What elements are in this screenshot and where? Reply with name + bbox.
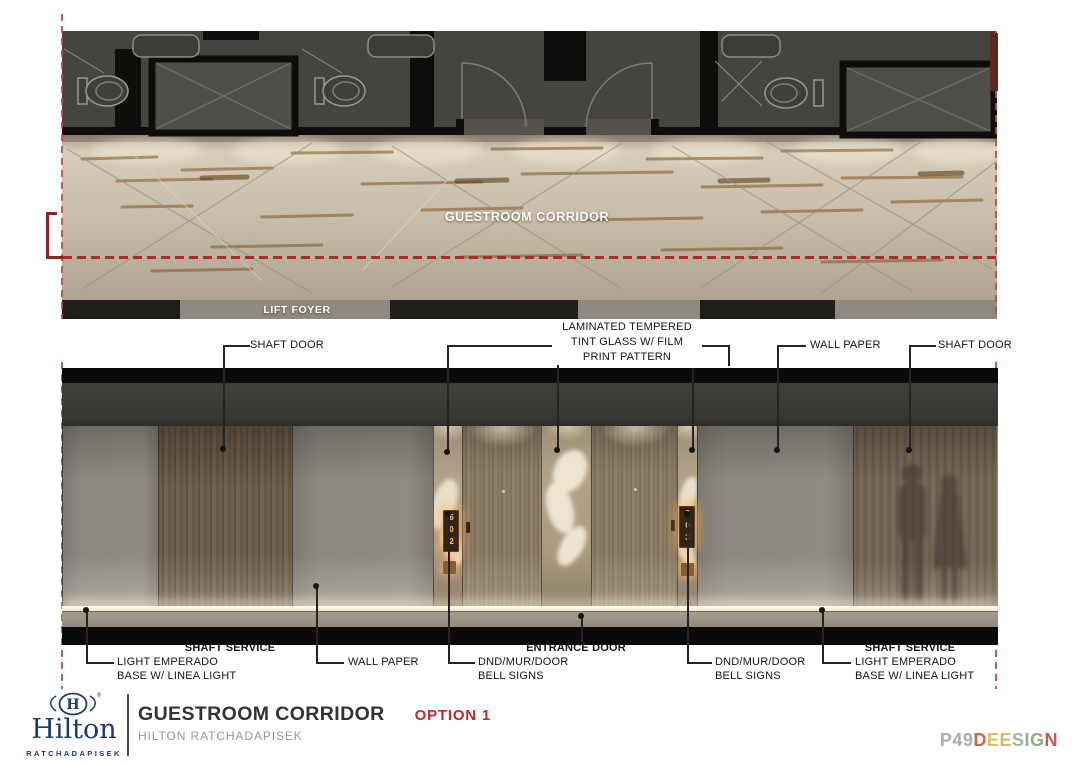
callout-shaft-service-right-title: SHAFT SERVICE — [835, 642, 985, 654]
leader-line — [448, 514, 450, 663]
entrance-door-603 — [591, 426, 678, 606]
shaft-service-door-left — [158, 426, 293, 606]
leader-line — [581, 616, 583, 642]
callout-shaft-service-right-line1: LIGHT EMPERADO — [855, 656, 956, 668]
callout-shaft-door-left: SHAFT DOOR — [250, 339, 324, 351]
callout-laminated-glass-line3: PRINT PATTERN — [552, 350, 702, 365]
studio-logo-letter: 4 — [952, 730, 963, 750]
leader-line — [822, 610, 824, 663]
page-subtitle: HILTON RATCHADAPISEK — [138, 729, 303, 743]
leader-line — [687, 514, 689, 663]
leader-line — [447, 345, 562, 347]
emperado-base — [62, 611, 998, 628]
footer: H ® Hilton RATCHADAPISEK GUESTROOM CORRI… — [0, 688, 1080, 763]
plan-drawing — [62, 31, 997, 319]
studio-logo-letter: D — [973, 730, 987, 750]
callout-dnd-left-line2: BELL SIGNS — [478, 670, 544, 682]
plan-corridor-label: GUESTROOM CORRIDOR — [392, 210, 662, 224]
callout-dnd-right-line2: BELL SIGNS — [715, 670, 781, 682]
dnd-doorbell-sign-602 — [443, 561, 456, 574]
leader-line — [557, 360, 559, 450]
leader-line — [778, 345, 806, 347]
leader-line — [728, 345, 730, 366]
elevation-ceiling-band — [62, 368, 998, 383]
leader-line — [687, 662, 712, 664]
leader-dot — [554, 447, 560, 453]
studio-logo-letter: E — [999, 730, 1012, 750]
print-glass-panel-center — [541, 426, 592, 606]
callout-laminated-glass-line1: LAMINATED TEMPERED — [552, 320, 702, 335]
section-bracket — [46, 212, 49, 259]
people-silhouette — [854, 426, 997, 606]
leader-line — [447, 345, 449, 452]
title-row: GUESTROOM CORRIDOR OPTION 1 — [138, 703, 491, 726]
hilton-wordmark: Hilton — [24, 714, 124, 745]
section-line-left-plan — [61, 14, 63, 319]
wallpaper-panel-left — [62, 426, 159, 606]
leader-line — [910, 345, 936, 347]
leader-line — [448, 662, 475, 664]
callout-laminated-glass-line2: TINT GLASS W/ FILM — [552, 335, 702, 350]
studio-logo-letter: P — [940, 730, 953, 750]
callout-wall-paper-top: WALL PAPER — [810, 339, 881, 351]
leader-line — [822, 662, 851, 664]
leader-line — [224, 345, 250, 347]
callout-laminated-glass: LAMINATED TEMPERED TINT GLASS W/ FILM PR… — [552, 320, 702, 365]
callout-shaft-service-left-title: SHAFT SERVICE — [155, 642, 305, 654]
callout-dnd-left-line1: DND/MUR/DOOR — [478, 656, 568, 668]
section-bracket-tick-bottom — [46, 256, 63, 259]
callout-shaft-service-right-line2: BASE W/ LINEA LIGHT — [855, 670, 974, 682]
door-lock-602 — [466, 522, 470, 533]
leader-dot — [578, 613, 584, 619]
leader-line — [692, 368, 694, 450]
crest-h-mark: H — [66, 697, 79, 713]
studio-logo-letter: S — [1012, 730, 1025, 750]
leader-dot — [684, 511, 690, 517]
leader-line — [316, 662, 344, 664]
leader-dot — [444, 449, 450, 455]
door-lock-603 — [671, 520, 675, 531]
leader-line — [909, 345, 911, 450]
leader-line — [86, 662, 114, 664]
studio-logo: P49DEESIGN — [940, 730, 1058, 751]
wallpaper-panel-mid-left — [292, 426, 434, 606]
studio-logo-letter: E — [987, 730, 1000, 750]
leader-dot — [313, 583, 319, 589]
leader-line — [86, 610, 88, 663]
callout-wall-paper-bottom: WALL PAPER — [348, 656, 419, 668]
registered-mark: ® — [97, 692, 102, 699]
footer-divider — [127, 694, 129, 756]
section-bracket-tick-top — [46, 212, 57, 215]
studio-logo-letter: G — [1030, 730, 1045, 750]
leader-line — [316, 586, 318, 663]
callout-dnd-right-line1: DND/MUR/DOOR — [715, 656, 805, 668]
slide-canvas: GUESTROOM CORRIDOR LIFT FOYER — [0, 0, 1080, 763]
studio-logo-letter: N — [1045, 730, 1059, 750]
option-badge: OPTION 1 — [415, 707, 491, 724]
wallpaper-panel-mid-right — [697, 426, 854, 606]
peephole-603 — [634, 488, 637, 491]
leader-dot — [220, 446, 226, 452]
studio-logo-letter: 9 — [963, 730, 974, 750]
leader-line — [777, 345, 779, 450]
leader-dot — [689, 447, 695, 453]
plan-right-wall-mark — [990, 33, 998, 91]
section-cut-line — [63, 256, 996, 259]
callout-shaft-door-right: SHAFT DOOR — [938, 339, 1012, 351]
leader-dot — [819, 607, 825, 613]
leader-dot — [445, 511, 451, 517]
leader-dot — [83, 607, 89, 613]
leader-line — [223, 345, 225, 449]
leader-dot — [774, 447, 780, 453]
elevation-wall: 602 603 — [62, 426, 998, 606]
callout-entrance-door: ENTRANCE DOOR — [520, 642, 632, 654]
leader-dot — [906, 447, 912, 453]
plan-view: GUESTROOM CORRIDOR LIFT FOYER — [62, 31, 997, 319]
callout-shaft-service-left-line2: BASE W/ LINEA LIGHT — [117, 670, 236, 682]
hilton-property-name: RATCHADAPISEK — [24, 749, 124, 758]
elevation-view: 602 603 — [62, 368, 998, 645]
callout-shaft-service-left-line1: LIGHT EMPERADO — [117, 656, 218, 668]
peephole-602 — [502, 490, 505, 493]
shaft-service-door-right — [853, 426, 997, 606]
elevation-bulkhead — [62, 383, 998, 426]
page-title: GUESTROOM CORRIDOR — [138, 703, 385, 726]
plan-lift-foyer-label: LIFT FOYER — [222, 304, 372, 316]
entrance-door-602 — [462, 426, 542, 606]
